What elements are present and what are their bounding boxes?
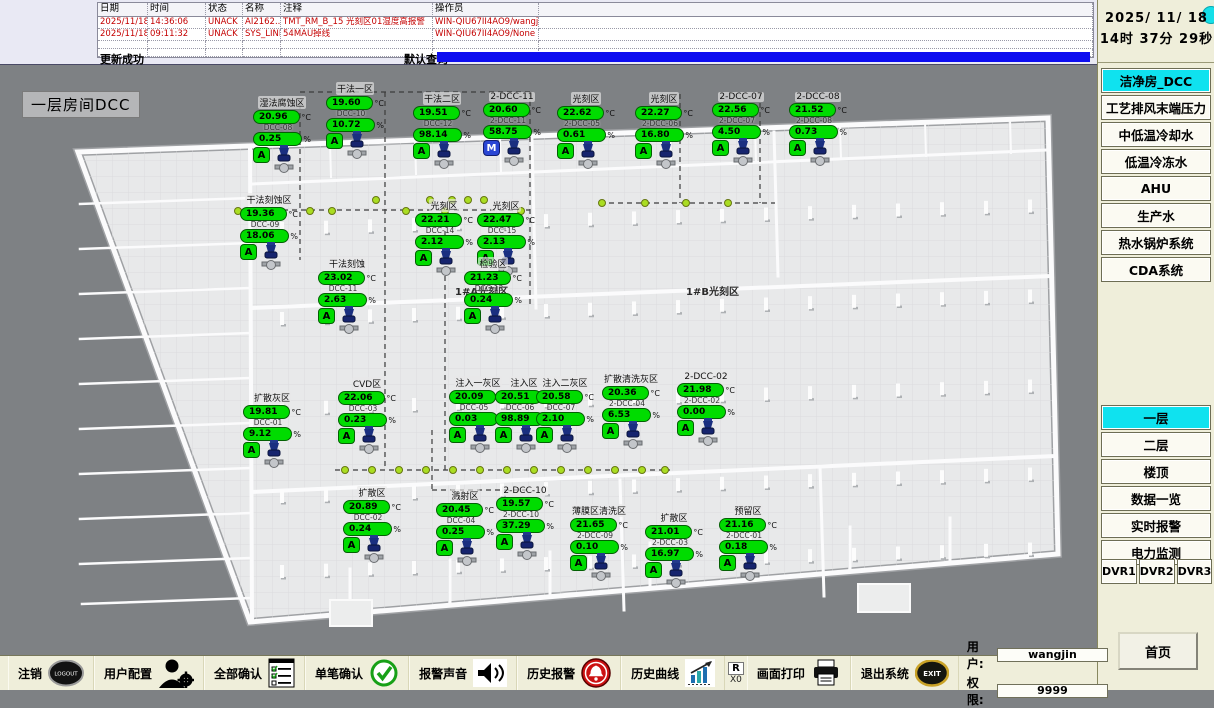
sensor-cluster[interactable]: 干法刻蚀23.02°CDCC-112.63%A [318,257,376,338]
print-button[interactable]: 画面打印 [747,656,851,690]
mode-badge[interactable]: A [602,423,619,439]
valve-icon [664,560,688,592]
valve-icon [345,131,369,163]
mode-badge[interactable]: A [719,555,736,571]
valve-icon [654,141,678,173]
column [1028,468,1032,481]
humidity-unit: % [486,528,494,537]
temperature-value: 20.36 [602,386,649,400]
mode-badge[interactable]: A [436,540,453,556]
mode-badge[interactable]: M [483,140,500,156]
temperature-unit: °C [544,500,554,509]
temperature-row: 20.36°C [602,386,660,400]
sensor-code: DCC-08 [253,124,303,132]
column [632,211,636,224]
mode-badge[interactable]: A [338,428,355,444]
column [896,384,900,397]
mode-badge[interactable]: A [495,427,512,443]
replay-counter-x: X0 [730,675,742,685]
column [676,210,680,223]
history-alarm-label: 历史报警 [527,665,575,682]
sensor-code: 2-DCC-10 [496,511,546,519]
humidity-value: 6.53 [602,408,651,422]
column [984,201,988,214]
temperature-unit: °C [584,393,594,402]
sensor-cluster[interactable]: 预留区21.16°C2-DCC-010.18%A [719,504,777,585]
humidity-unit: % [607,131,615,140]
temperature-value: 22.21 [415,213,462,227]
humidity-value: 0.10 [570,540,619,554]
humidity-row: 58.75% [483,125,541,139]
sensor-area-name: CVD区 [352,377,382,390]
mode-badge[interactable]: A [240,244,257,260]
sensor-area-name: 湿法腐蚀区 [258,96,305,109]
sensor-cluster[interactable]: 2-DCC-0221.98°C2-DCC-020.00%A [677,372,735,450]
divider [1098,62,1214,63]
status-dot [450,467,457,474]
humidity-unit: % [393,525,401,534]
replay-counter[interactable]: R X0 [725,662,747,685]
alarm-table[interactable]: 日期时间状态名称注释操作员2025/11/1814:36:06UNACKAI21… [97,2,1094,58]
sensor-area-name: 2-DCC-02 [683,372,728,382]
sensor-cluster[interactable]: 扩散清洗灰区20.36°C2-DCC-046.53%A [602,372,660,453]
temperature-row: 19.51°C [413,106,471,120]
mode-badge[interactable]: A [570,555,587,571]
sensor-cluster[interactable]: 干法二区19.51°CDCC-1298.14%A [413,92,471,173]
column [720,299,724,312]
humidity-value: 37.29 [496,519,545,533]
temperature-unit: °C [683,109,693,118]
confirm-all-icon [268,658,295,688]
column [808,549,812,562]
confirm-all-label: 全部确认 [214,665,262,682]
sensor-cluster[interactable]: 薄膜区清洗区21.65°C2-DCC-090.10%A [570,504,628,585]
alarm-cell [539,17,1093,29]
temperature-row: 21.01°C [645,525,703,539]
column [940,292,944,305]
status-dot [558,467,565,474]
column [456,307,460,320]
sensor-area-name: 干法一区 [336,82,374,95]
column [632,301,636,314]
temperature-value: 20.58 [536,390,583,404]
humidity-row: 0.73% [789,125,847,139]
temperature-value: 21.16 [719,518,766,532]
sidebar-system-button[interactable]: 热水锅炉系统 [1101,230,1211,255]
temperature-value: 23.02 [318,271,365,285]
mode-badge[interactable]: A [557,143,574,159]
dvr-button[interactable]: DVR3 [1177,559,1213,584]
toolbar: 注销 LOGOUT 用户配置 全部确认 单笔确认 报警声音 历史报警 [0,655,1097,690]
dvr-button-row: DVR1DVR2DVR3 [1101,559,1211,584]
column [632,479,636,492]
history-alarm-button[interactable]: 历史报警 [517,656,621,690]
humidity-row: 0.10% [570,540,628,554]
column [764,297,768,310]
status-dot [342,467,349,474]
sensor-code: DCC-12 [413,120,463,128]
mode-badge[interactable]: A [789,140,806,156]
column [368,219,372,232]
dvr-button[interactable]: DVR1 [1101,559,1137,584]
temperature-value: 20.89 [343,500,390,514]
status-dot [329,208,336,215]
sidebar-view-button[interactable]: 楼顶 [1101,459,1211,484]
alarm-cell: UNACK [206,17,243,29]
sensor-cluster[interactable]: 溅射区20.45°CDCC-040.25%A [436,489,494,570]
humidity-unit: % [762,128,770,137]
sensor-area-name: 扩散清洗灰区 [603,372,659,385]
alarm-cell: 09:11:32 [148,29,206,41]
temperature-value: 19.81 [243,405,290,419]
mode-badge[interactable]: A [496,534,513,550]
humidity-value: 0.73 [789,125,838,139]
sensor-area-name: 光刻区 [491,199,520,212]
sensor-cluster[interactable]: 湿法腐蚀区20.96°CDCC-080.25%A [253,96,311,177]
temperature-unit: °C [767,521,777,530]
sidebar-system-button[interactable]: CDA系统 [1101,257,1211,282]
exit-system-button[interactable]: 退出系统 EXIT [851,656,959,690]
sensor-code: DCC-14 [415,227,465,235]
sensor-code: DCC-01 [243,419,293,427]
mode-badge[interactable]: A [326,133,343,149]
temperature-row: 21.23°C [464,271,522,285]
user-config-button[interactable]: 用户配置 [94,656,204,690]
column [764,207,768,220]
temperature-row: 21.52°C [789,103,847,117]
column [808,296,812,309]
sidebar-view-button[interactable]: 一层 [1101,405,1211,430]
column [852,473,856,486]
temperature-unit: °C [760,106,770,115]
column [808,386,812,399]
sensor-area-name: 光刻区 [571,92,600,105]
alarm-header-cell: 名称 [243,3,281,17]
humidity-unit: % [463,131,471,140]
alarm-summary-bar: 日期时间状态名称注释操作员2025/11/1814:36:06UNACKAI21… [0,0,1097,65]
column [808,206,812,219]
valve-icon [357,426,381,458]
status-dot [585,467,592,474]
history-curve-icon [685,659,715,687]
mode-badge[interactable]: A [449,427,466,443]
column [280,565,284,578]
valve-icon [515,532,539,564]
temperature-unit: °C [725,386,735,395]
mode-badge[interactable]: A [712,140,729,156]
user-info-block: 用户: wangjin 权限: 9999 [959,638,1108,708]
humidity-value: 2.10 [536,412,585,426]
humidity-unit: % [620,543,628,552]
mode-badge[interactable]: A [536,427,553,443]
sensor-code: DCC-07 [536,404,586,412]
temperature-unit: °C [837,106,847,115]
sensor-cluster[interactable]: 2-DCC-0722.56°C2-DCC-074.50%A [712,92,770,170]
sensor-code: DCC-02 [343,514,393,522]
floor-slab [78,118,1058,622]
replay-counter-r: R [728,662,744,675]
humidity-row: 2.13% [477,235,535,249]
humidity-value: 0.18 [719,540,768,554]
column [676,478,680,491]
sensor-area-name: 扩散区 [659,511,688,524]
humidity-row: 4.50% [712,125,770,139]
humidity-unit: % [527,238,535,247]
mode-badge[interactable]: A [464,308,481,324]
temperature-value: 21.01 [645,525,692,539]
sensor-area-name: 2-DCC-08 [795,92,840,102]
alarm-status-row: 更新成功 默认查询 [0,51,1097,64]
sensor-cluster[interactable]: 干法刻蚀区19.36°CDCC-0918.06%A [240,193,298,274]
mode-badge[interactable]: A [415,250,432,266]
status-dot [683,200,690,207]
temperature-unit: °C [391,503,401,512]
valve-icon [696,418,720,450]
humidity-value: 0.24 [464,293,513,307]
alarm-sound-icon [473,659,507,687]
floor-plan-canvas: 一层房间DCC 1#A光刻区1#B光刻区 湿法腐蚀区20.96°CDCC-080… [0,64,1097,655]
sensor-cluster[interactable]: CVD区22.06°CDCC-030.23%A [338,377,396,458]
status-dot [373,197,380,204]
column [588,481,592,494]
temperature-value: 22.06 [338,391,385,405]
history-curve-button[interactable]: 历史曲线 [621,656,725,690]
temperature-value: 21.23 [464,271,511,285]
humidity-value: 0.24 [343,522,392,536]
sensor-cluster[interactable]: 2-DCC-1120.60°C2-DCC-1158.75%M [483,92,541,170]
column [544,304,548,317]
column [412,308,416,321]
mode-badge[interactable]: A [645,562,662,578]
column [764,475,768,488]
sensor-cluster[interactable]: 光刻区22.62°C2-DCC-050.61%A [557,92,615,173]
valve-icon [808,138,832,170]
temperature-row: 21.16°C [719,518,777,532]
status-dot [307,208,314,215]
hall-label: 1#B光刻区 [686,283,739,298]
temperature-unit: °C [605,109,615,118]
alarm-header-cell: 状态 [206,3,243,17]
sensor-cluster[interactable]: 干法一区19.60°CDCC-1010.72%A [326,82,384,163]
humidity-value: 4.50 [712,125,761,139]
alarm-sound-button[interactable]: 报警声音 [409,656,517,690]
sidebar-system-button[interactable]: AHU [1101,176,1211,201]
temperature-row: 19.81°C [243,405,301,419]
humidity-unit: % [293,430,301,439]
alarm-row[interactable]: 2025/11/1809:11:32UNACKSYS_LINK654MAU掉线W… [98,29,1093,41]
sensor-cluster[interactable]: 注入二灰区20.58°CDCC-072.10%A [536,376,594,457]
sensor-code: 2-DCC-01 [719,532,769,540]
sensor-code: 2-DCC-05 [557,120,607,128]
sensor-area-name: 2-DCC-07 [718,92,763,102]
sensor-code: 2-DCC-03 [645,539,695,547]
sensor-area-name: 干法刻蚀区 [245,193,292,206]
humidity-row: 0.24% [343,522,401,536]
temperature-unit: °C [484,506,494,515]
alarm-cell [539,29,1093,41]
svg-text:LOGOUT: LOGOUT [54,671,78,677]
logout-icon: LOGOUT [48,660,84,687]
temperature-unit: °C [301,113,311,122]
temperature-row: 20.89°C [343,500,401,514]
status-dot [423,467,430,474]
column [412,561,416,574]
humidity-unit: % [685,131,693,140]
column [412,398,416,411]
mode-badge[interactable]: A [413,143,430,159]
humidity-unit: % [368,296,376,305]
column [764,387,768,400]
sidebar: 2025/ 11/ 18 14时 37分 29秒 洁净房_DCC工艺排风末端压力… [1097,0,1214,690]
sensor-cluster[interactable]: 2-DCC-0821.52°C2-DCC-080.73%A [789,92,847,170]
sidebar-system-button[interactable]: 工艺排风末端压力 [1101,95,1211,120]
temperature-value: 22.47 [477,213,524,227]
humidity-row: 16.80% [635,128,693,142]
sidebar-system-button[interactable]: 生产水 [1101,203,1211,228]
humidity-unit: % [652,411,660,420]
sensor-cluster[interactable]: 扩散区21.01°C2-DCC-0316.97%A [645,511,703,592]
query-progress-bar [437,52,1090,62]
valve-icon [502,138,526,170]
column [984,291,988,304]
temperature-row: 20.60°C [483,103,541,117]
valve-icon [738,553,762,585]
valve-icon [621,421,645,453]
valve-icon [337,306,361,338]
humidity-value: 0.23 [338,413,387,427]
alarm-header-cell: 注释 [281,3,433,17]
column [1028,380,1032,393]
humidity-unit: % [839,128,847,137]
sensor-code: 2-DCC-08 [789,117,839,125]
sensor-area-name: 光刻区 [649,92,678,105]
sidebar-system-button[interactable]: 洁净房_DCC [1101,68,1211,93]
column [588,303,592,316]
sensor-area-name: 薄膜区清洗区 [571,504,627,517]
sensor-cluster[interactable]: 检验区21.23°CDCC-130.24%A [464,257,522,338]
temperature-value: 20.96 [253,110,300,124]
confirm-single-label: 单笔确认 [315,665,363,682]
humidity-value: 0.25 [436,525,485,539]
sensor-cluster[interactable]: 扩散区20.89°CDCC-020.24%A [343,486,401,567]
sensor-cluster[interactable]: 2-DCC-1019.57°C2-DCC-1037.29%A [496,486,554,564]
mode-badge[interactable]: A [343,537,360,553]
humidity-unit: % [769,543,777,552]
temperature-unit: °C [366,274,376,283]
humidity-row: 0.18% [719,540,777,554]
sidebar-view-button[interactable]: 二层 [1101,432,1211,457]
clock-date: 2025/ 11/ 18 [1098,8,1214,29]
dvr-button[interactable]: DVR2 [1139,559,1175,584]
humidity-unit: % [290,232,298,241]
sidebar-view-button[interactable]: 实时报警 [1101,513,1211,538]
mode-badge[interactable]: A [677,420,694,436]
exit-icon: EXIT [915,660,949,687]
temperature-unit: °C [531,106,541,115]
humidity-unit: % [465,238,473,247]
valve-icon [434,248,458,280]
valve-icon [362,535,386,567]
logout-button[interactable]: 注销 LOGOUT [8,656,94,690]
column [896,204,900,217]
temperature-value: 22.27 [635,106,682,120]
mode-badge[interactable]: A [318,308,335,324]
valve-icon [262,440,286,472]
column [940,382,944,395]
alarm-cell: 2025/11/18 [98,29,148,41]
valve-icon [259,242,283,274]
mode-badge[interactable]: A [253,147,270,163]
sensor-area-name: 扩散灰区 [253,391,291,404]
column [852,385,856,398]
view-button-group: 一层二层楼顶数据一览实时报警电力监测 [1101,405,1211,567]
print-label: 画面打印 [757,665,805,682]
column [940,202,944,215]
column [280,312,284,325]
sensor-code: 2-DCC-06 [635,120,685,128]
column [984,469,988,482]
svg-text:EXIT: EXIT [923,670,941,678]
temperature-row: 22.21°C [415,213,473,227]
status-dot [662,467,669,474]
temperature-unit: °C [288,210,298,219]
alarm-cell: 14:36:06 [148,17,206,29]
priv-label: 权限: [967,674,993,708]
mode-badge[interactable]: A [635,143,652,159]
confirm-single-button[interactable]: 单笔确认 [305,656,409,690]
alarm-cell: WIN-QIU67II4AO9/None [433,29,539,41]
column [1028,543,1032,556]
humidity-row: 16.97% [645,547,703,561]
home-button[interactable]: 首页 [1118,632,1198,670]
mode-badge[interactable]: A [243,442,260,458]
sensor-cluster[interactable]: 扩散灰区19.81°CDCC-019.12%A [243,391,301,472]
user-label: 用户: [967,638,993,672]
humidity-unit: % [727,408,735,417]
floor-plan-drawing [0,64,1097,655]
status-dot [599,200,606,207]
temperature-row: 20.45°C [436,503,494,517]
temperature-unit: °C [525,216,535,225]
user-config-icon [158,658,194,688]
column [940,545,944,558]
temperature-row: 20.58°C [536,390,594,404]
sidebar-system-button[interactable]: 中低温冷却水 [1101,122,1211,147]
temperature-value: 20.45 [436,503,483,517]
sidebar-view-button[interactable]: 数据一览 [1101,486,1211,511]
humidity-value: 2.12 [415,235,464,249]
humidity-row: 98.14% [413,128,471,142]
confirm-single-icon [369,658,399,688]
humidity-value: 0.00 [677,405,726,419]
alarm-row[interactable]: 2025/11/1814:36:06UNACKAI2162...TMT_RM_B… [98,17,1093,29]
alarm-header-cell: 日期 [98,3,148,17]
sidebar-system-button[interactable]: 低温冷冻水 [1101,149,1211,174]
sensor-area-name: 注入区 [509,376,538,389]
temperature-unit: °C [461,109,471,118]
column [588,213,592,226]
confirm-all-button[interactable]: 全部确认 [204,656,305,690]
sensor-cluster[interactable]: 光刻区22.27°C2-DCC-0616.80%A [635,92,693,173]
humidity-row: 0.00% [677,405,735,419]
humidity-unit: % [388,416,396,425]
valve-icon [555,425,579,457]
status-dot [612,467,619,474]
valve-icon [731,138,755,170]
temperature-row: 22.06°C [338,391,396,405]
column [984,381,988,394]
user-config-label: 用户配置 [104,665,152,682]
